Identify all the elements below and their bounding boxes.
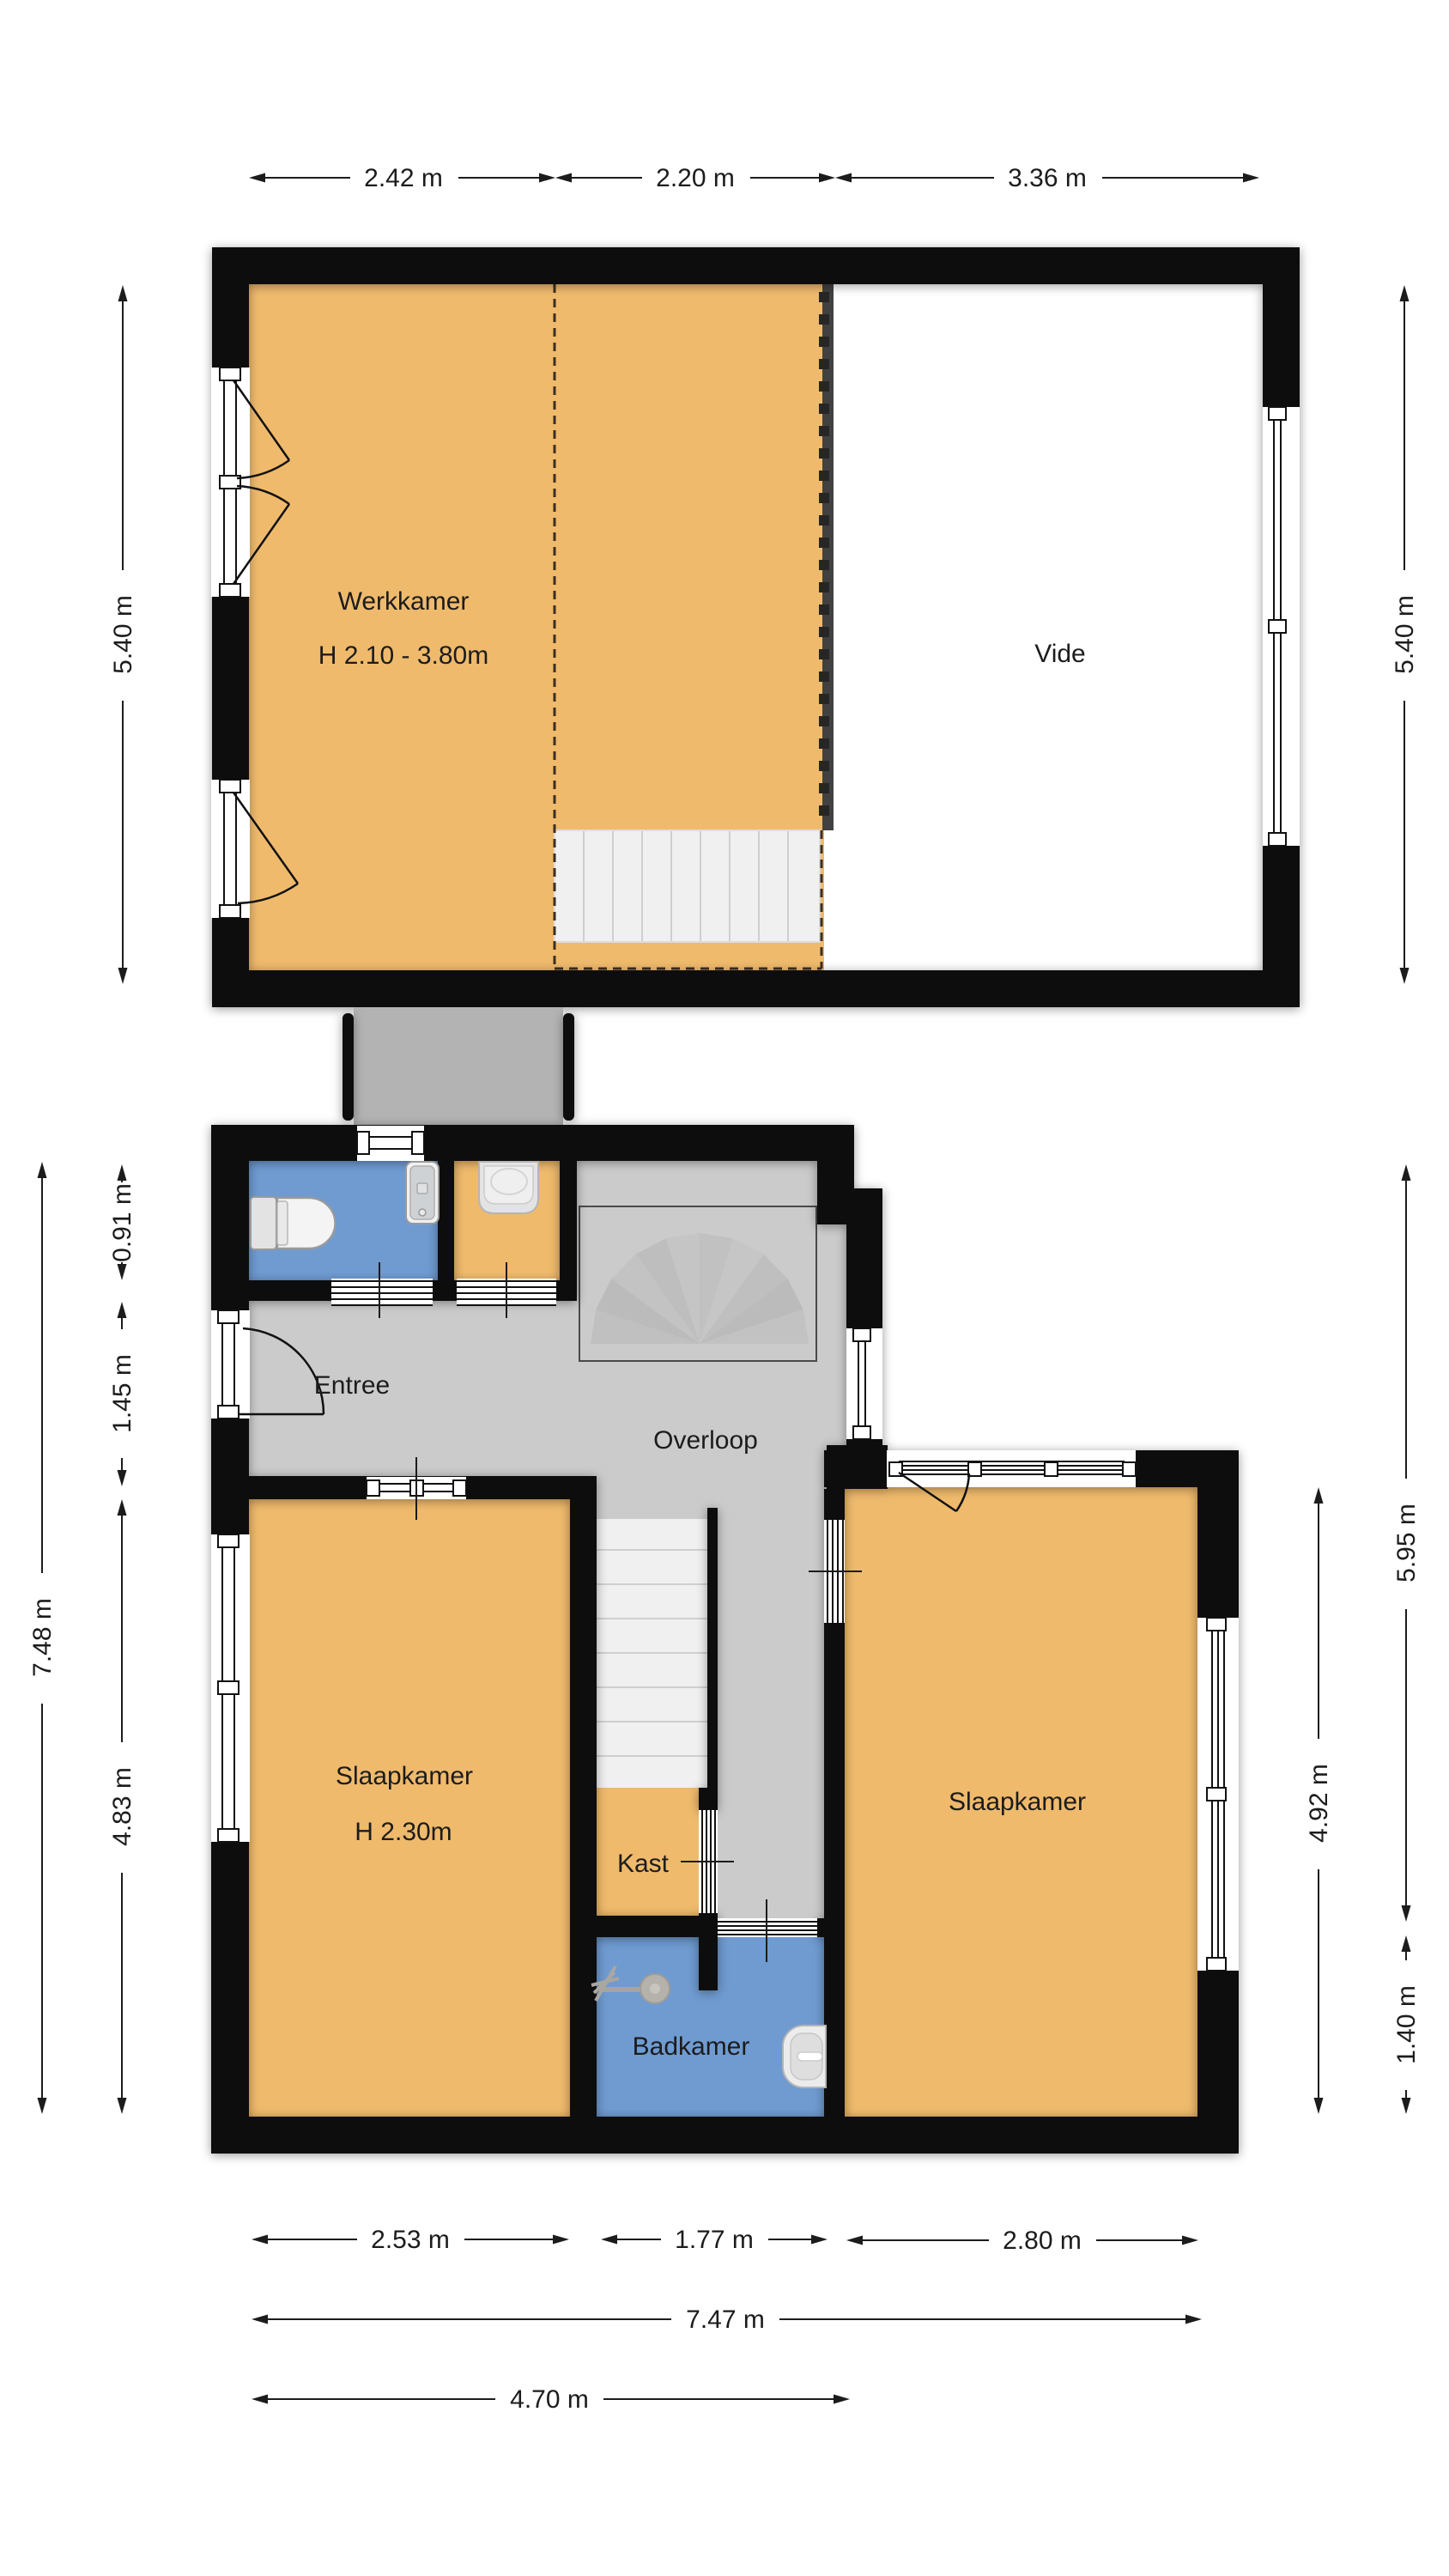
svg-text:1.77 m: 1.77 m — [675, 2226, 754, 2254]
svg-text:H 2.30m: H 2.30m — [355, 1818, 452, 1846]
svg-text:4.70 m: 4.70 m — [510, 2385, 589, 2414]
svg-text:3.36 m: 3.36 m — [1008, 164, 1087, 192]
svg-text:Kast: Kast — [617, 1850, 670, 1878]
svg-text:Werkkamer: Werkkamer — [338, 587, 470, 616]
svg-text:Slaapkamer: Slaapkamer — [949, 1788, 1086, 1816]
svg-text:0.91 m: 0.91 m — [108, 1183, 136, 1262]
svg-text:4.83 m: 4.83 m — [108, 1767, 136, 1846]
svg-text:Slaapkamer: Slaapkamer — [336, 1762, 473, 1790]
svg-text:4.92 m: 4.92 m — [1305, 1764, 1333, 1843]
svg-text:2.80 m: 2.80 m — [1003, 2227, 1082, 2255]
svg-text:Vide: Vide — [1034, 640, 1086, 668]
svg-text:1.40 m: 1.40 m — [1392, 1985, 1421, 2064]
svg-text:5.40 m: 5.40 m — [109, 595, 137, 674]
svg-text:Entree: Entree — [314, 1371, 390, 1400]
svg-text:7.47 m: 7.47 m — [686, 2306, 765, 2334]
svg-text:2.20 m: 2.20 m — [656, 164, 735, 192]
svg-text:5.40 m: 5.40 m — [1391, 595, 1419, 674]
svg-text:7.48 m: 7.48 m — [28, 1598, 57, 1677]
svg-text:1.45 m: 1.45 m — [108, 1354, 136, 1433]
svg-text:H 2.10 - 3.80m: H 2.10 - 3.80m — [318, 641, 488, 670]
svg-text:Overloop: Overloop — [653, 1426, 758, 1455]
svg-text:Badkamer: Badkamer — [633, 2032, 750, 2061]
svg-text:2.53 m: 2.53 m — [371, 2226, 450, 2254]
svg-text:5.95 m: 5.95 m — [1392, 1504, 1421, 1583]
svg-text:2.42 m: 2.42 m — [364, 164, 443, 192]
